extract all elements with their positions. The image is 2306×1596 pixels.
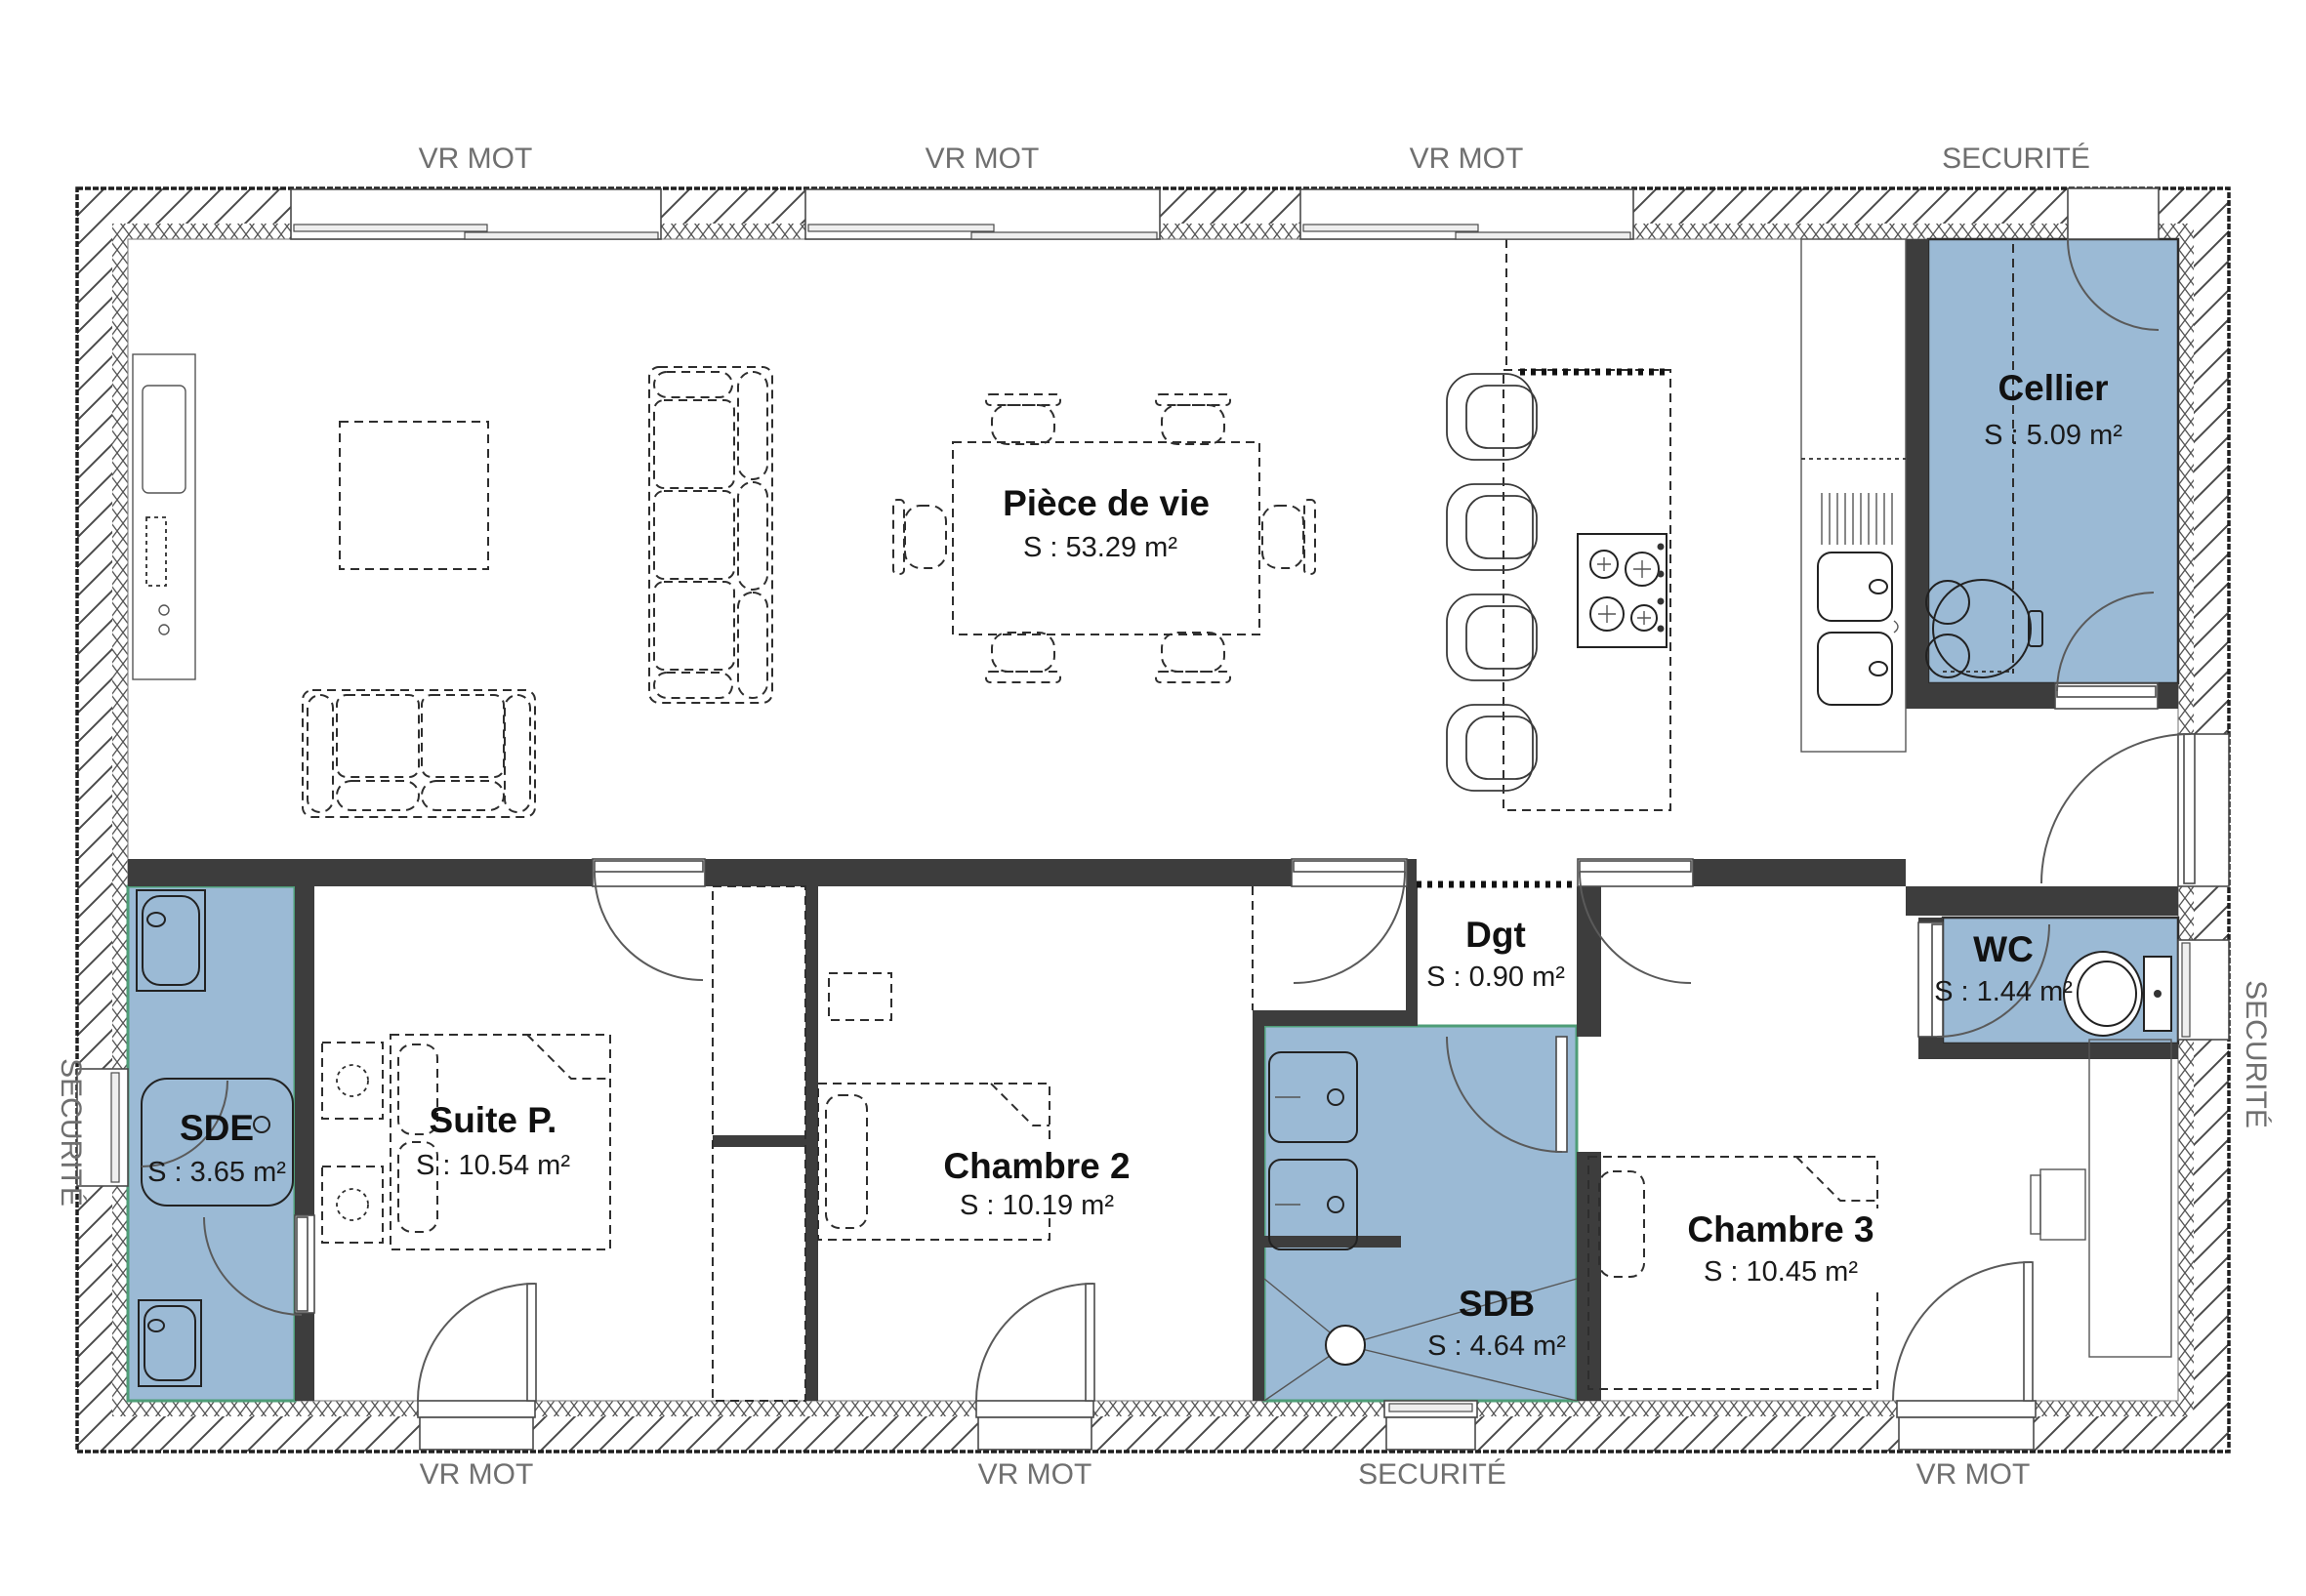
window-top-3 — [1300, 189, 1633, 239]
room-area-sde: S : 3.65 m² — [147, 1157, 286, 1188]
label-bottom-securite: SECURITÉ — [1358, 1458, 1506, 1491]
label-bottom-vrmot-2: VR MOT — [978, 1458, 1092, 1491]
room-label-chambre3: Chambre 3 — [1687, 1209, 1874, 1249]
room-cellier[interactable] — [1928, 239, 2178, 683]
room-label-sde: SDE — [180, 1108, 254, 1148]
window-sdb-bottom — [1384, 1401, 1477, 1450]
toilet — [2064, 952, 2171, 1036]
room-label-cellier: Cellier — [1997, 368, 2108, 408]
label-left-securite: SECURITÉ — [55, 1058, 87, 1207]
room-area-chambre3: S : 10.45 m² — [1704, 1256, 1858, 1288]
label-top-vrmot-1: VR MOT — [419, 143, 533, 175]
room-area-suite: S : 10.54 m² — [416, 1150, 570, 1181]
label-top-vrmot-3: VR MOT — [1410, 143, 1524, 175]
room-label-dgt: Dgt — [1465, 915, 1526, 955]
window-top-2 — [805, 189, 1160, 239]
room-area-piece-de-vie: S : 53.29 m² — [1023, 532, 1177, 563]
room-label-suite: Suite P. — [430, 1100, 557, 1140]
room-area-cellier: S : 5.09 m² — [1984, 420, 2122, 451]
label-right-securite: SECURITÉ — [2240, 980, 2272, 1128]
label-bottom-vrmot-3: VR MOT — [1916, 1458, 2031, 1491]
label-top-vrmot-2: VR MOT — [926, 143, 1040, 175]
room-area-dgt: S : 0.90 m² — [1426, 962, 1565, 993]
floor-plan: Pièce de vie S : 53.29 m² Cellier S : 5.… — [0, 0, 2306, 1596]
room-label-chambre2: Chambre 2 — [943, 1146, 1130, 1186]
room-area-wc: S : 1.44 m² — [1934, 976, 2073, 1007]
window-top-1 — [291, 189, 661, 239]
room-label-sdb: SDB — [1459, 1284, 1535, 1324]
cooktop — [1578, 534, 1667, 647]
window-wc-right — [2178, 940, 2229, 1040]
label-top-securite: SECURITÉ — [1942, 143, 2090, 175]
room-area-chambre2: S : 10.19 m² — [960, 1190, 1114, 1221]
room-area-sdb: S : 4.64 m² — [1427, 1330, 1566, 1362]
room-label-wc: WC — [1973, 929, 2034, 969]
room-label-piece-de-vie: Pièce de vie — [1003, 483, 1210, 523]
label-bottom-vrmot-1: VR MOT — [420, 1458, 534, 1491]
